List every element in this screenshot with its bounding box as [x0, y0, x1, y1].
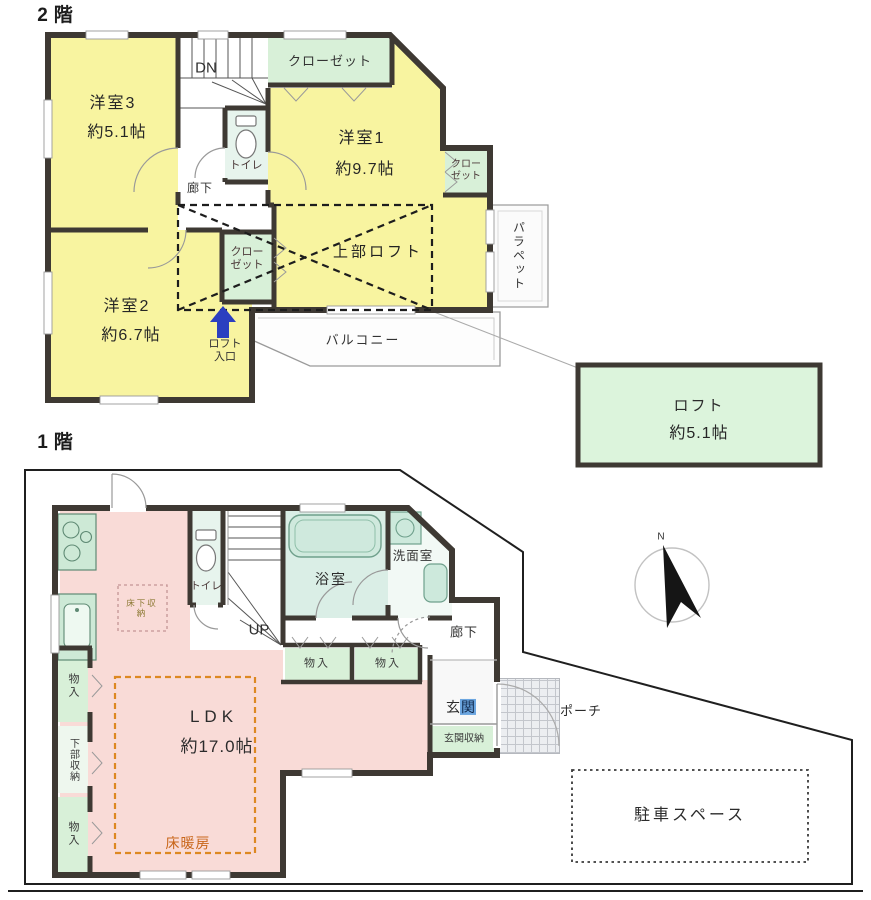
floor1-title: 1階 [37, 432, 79, 454]
closet-side-label: クローゼット [448, 159, 484, 183]
washbasin-icon [424, 564, 447, 602]
lower-storage-label: 下部収納 [66, 738, 81, 782]
toilet-icon-1f [196, 530, 216, 571]
floorplan-canvas: 2階 洋室3 約5.1帖 DN トイレ 廊下 クローゼット 洋室1 約9.7帖 … [0, 0, 871, 900]
parapet-label: パラペット [511, 221, 528, 291]
closet-top-label: クローゼット [288, 55, 372, 70]
hallway-label-1f: 廊下 [450, 626, 478, 641]
loft-box-name: ロフト [673, 397, 724, 414]
loft-entrance-label: ロフト入口 [205, 338, 245, 364]
hallway-label-2f: 廊下 [187, 182, 213, 196]
room-label-yoshitsu3: 洋室3 [90, 95, 137, 113]
porch-label: ポーチ [560, 705, 602, 720]
room-size-yoshitsu2: 約6.7帖 [101, 327, 160, 345]
genkan-label: 玄関 [446, 699, 476, 715]
room-size-yoshitsu1: 約9.7帖 [335, 161, 394, 179]
storage-row-a-label: 物入 [304, 658, 330, 671]
toilet-label-2f: トイレ [230, 160, 263, 173]
loft-box [578, 365, 820, 465]
genkan-char-plain: 玄 [446, 699, 460, 715]
floor2-title: 2階 [37, 5, 79, 27]
parking-label: 駐車スペース [634, 807, 746, 825]
stairs-up-label: UP [249, 621, 270, 638]
room-label-yoshitsu1: 洋室1 [339, 130, 386, 148]
bath-label: 浴室 [315, 571, 347, 587]
toilet-icon-2f [236, 116, 256, 158]
storage-left-bottom-label: 物入 [65, 821, 81, 847]
toilet-label-1f: トイレ [190, 580, 222, 592]
floor-storage-label: 床下収納 [125, 598, 159, 618]
ldk-label: LDK [190, 707, 238, 727]
storage-left-top-label: 物入 [65, 673, 81, 699]
balcony-label: バルコニー [326, 334, 401, 349]
ldk-size-label: 約17.0帖 [180, 737, 253, 757]
genkan-char-highlighted: 関 [460, 699, 476, 715]
room-label-yoshitsu2: 洋室2 [104, 298, 151, 316]
genkan-storage-label: 玄関収納 [444, 733, 484, 745]
closet-mid-label: クローゼット [228, 246, 266, 272]
washroom-label: 洗面室 [393, 549, 434, 563]
floor-heating-label: 床暖房 [166, 835, 211, 851]
loft-box-size: 約5.1帖 [669, 425, 728, 443]
compass-north-label: N [657, 531, 664, 543]
bathtub-icon [289, 515, 381, 557]
compass-north-icon [635, 545, 709, 628]
stairs-down-label: DN [195, 59, 217, 76]
storage-row-b-label: 物入 [375, 658, 401, 671]
room-size-yoshitsu3: 約5.1帖 [87, 124, 146, 142]
upper-loft-label: 上部ロフト [333, 243, 423, 260]
